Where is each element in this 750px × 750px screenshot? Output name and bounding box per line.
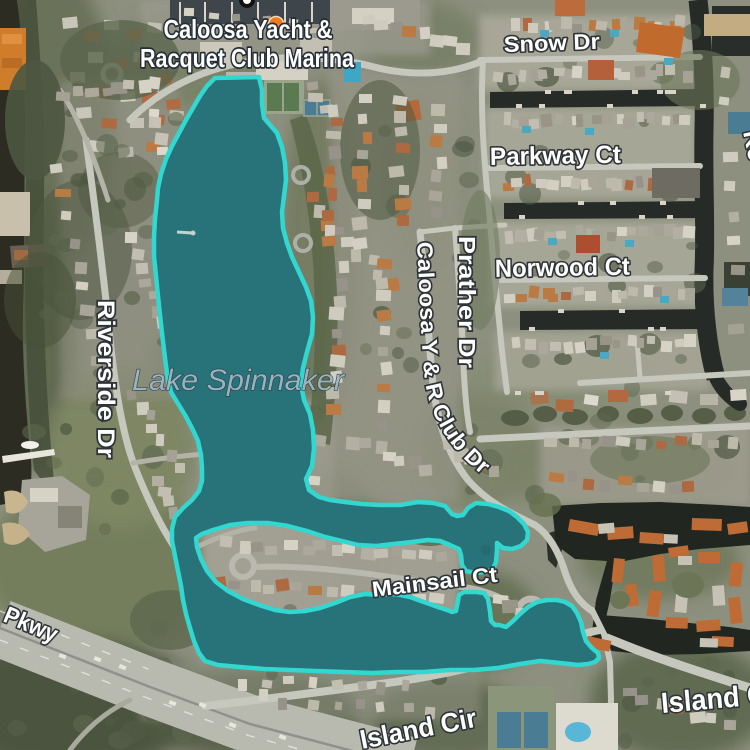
svg-text:Lake Spinnaker: Lake Spinnaker xyxy=(132,364,345,397)
svg-text:Norwood Ct: Norwood Ct xyxy=(495,253,631,283)
svg-text:Riverside Dr: Riverside Dr xyxy=(92,300,119,458)
svg-text:Racquet Club Marina: Racquet Club Marina xyxy=(140,43,354,73)
svg-text:Caloosa Yacht &: Caloosa Yacht & xyxy=(164,14,333,44)
svg-text:Parkway Ct: Parkway Ct xyxy=(490,141,622,171)
svg-text:Snow Dr: Snow Dr xyxy=(503,29,600,57)
svg-text:Prather Dr: Prather Dr xyxy=(454,236,480,368)
